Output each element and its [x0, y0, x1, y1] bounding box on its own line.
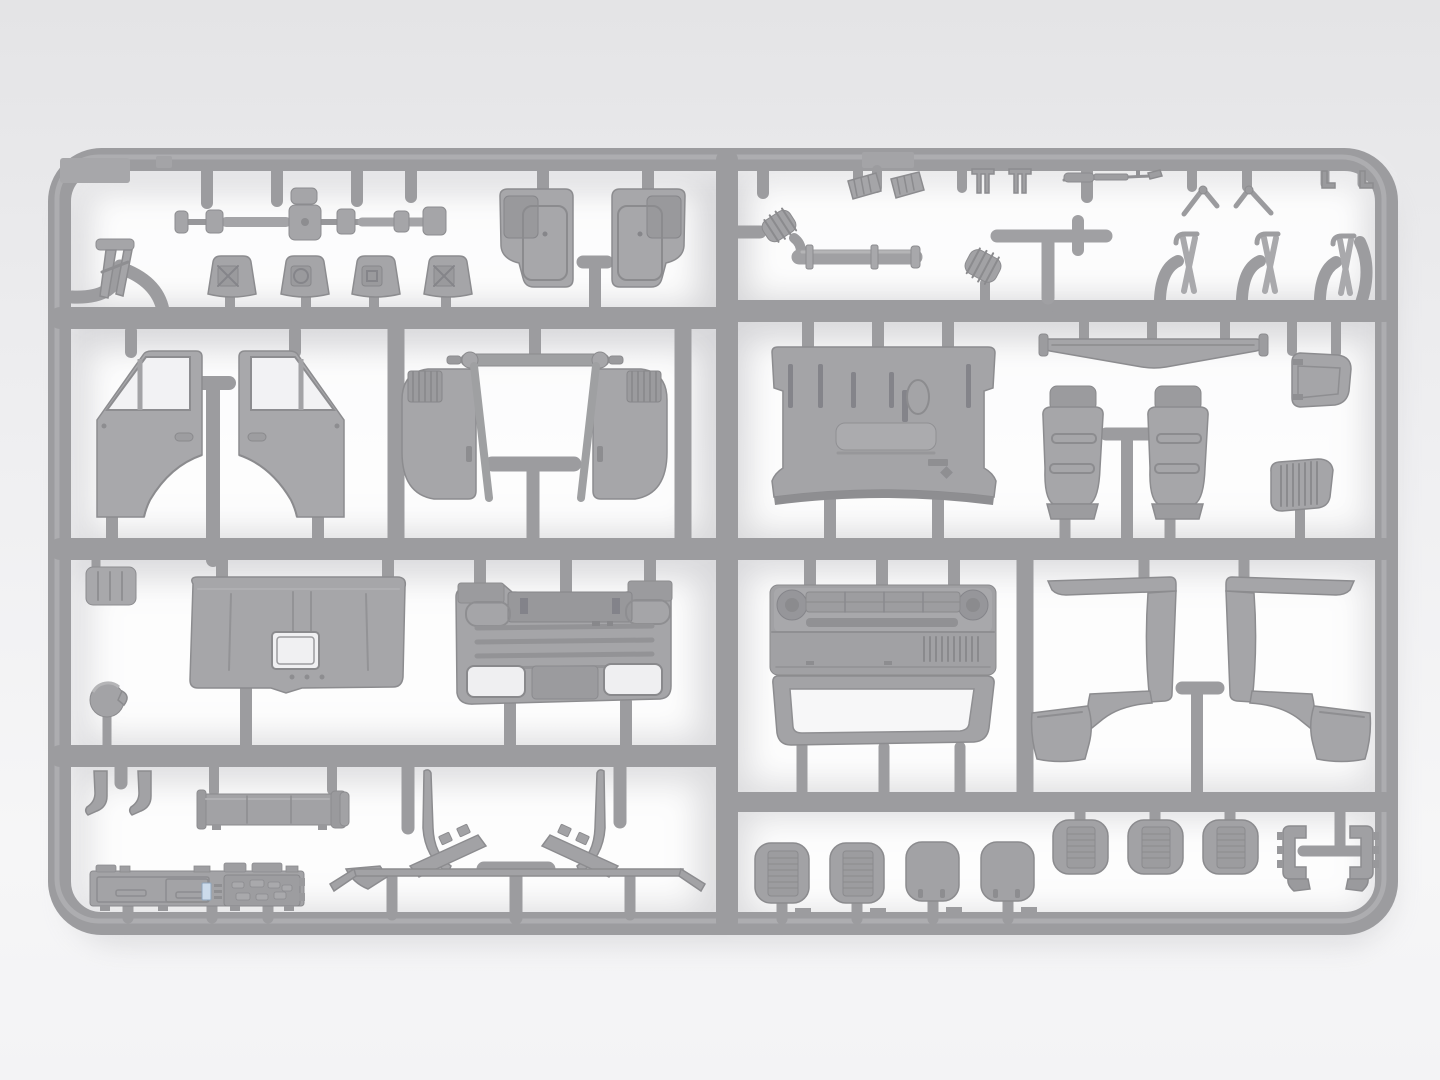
grille-clip [520, 598, 528, 614]
crossbar-pin [609, 356, 623, 364]
seat-cushion [906, 842, 959, 901]
driveshaft-bolt [301, 218, 309, 226]
cab-floor-panel [772, 347, 996, 497]
radio-button [214, 896, 222, 899]
molded-tab [156, 156, 172, 168]
engine-hump-step [836, 423, 936, 450]
dash-round-vent-center [785, 598, 799, 612]
fascia-tab [252, 863, 282, 872]
roof-hole [320, 675, 325, 680]
roof-hole [290, 675, 295, 680]
panel-slot [851, 372, 856, 408]
bracket-foot [1288, 879, 1310, 891]
cluster-bump [236, 893, 250, 900]
panel-slot [818, 364, 823, 408]
cowl-slot [466, 446, 472, 462]
cushion-foot [918, 889, 923, 898]
door-lock-dot [102, 424, 107, 429]
license-plate-recess [532, 666, 598, 699]
cluster-bump [256, 894, 268, 900]
bracket-serration [1277, 846, 1283, 854]
cluster-bump [274, 892, 286, 899]
fascia-tab [96, 865, 116, 872]
wishbone-joint [1199, 186, 1207, 194]
bracket-serration [1277, 860, 1283, 868]
trim-blade [352, 869, 683, 876]
fascia-foot [158, 906, 168, 911]
cushion-rib-panel [1067, 827, 1095, 868]
cushion-rib-panel [1217, 827, 1245, 868]
molded-tab [862, 152, 914, 168]
pipe-endcap [911, 246, 920, 268]
door-lock-dot [335, 424, 340, 429]
cushion-rib-panel [1142, 827, 1170, 868]
rifle-body [1064, 173, 1094, 182]
seatback-flap [1152, 504, 1203, 519]
pipe-flange [806, 245, 813, 269]
grille-slat [477, 640, 652, 642]
gate-step [1021, 907, 1037, 916]
seatback-body [1148, 407, 1208, 504]
door-handle [248, 433, 266, 441]
fascia-side-tab [299, 878, 305, 886]
cowl-slot [597, 446, 603, 462]
duct-foot [212, 824, 221, 830]
side-frame-pillar [1146, 591, 1176, 702]
molded-corner-tab [60, 158, 130, 183]
cushion-foot [1015, 889, 1020, 898]
small-bar [340, 792, 349, 826]
door-card-pocket [647, 196, 681, 238]
door-card-pocket [504, 196, 538, 238]
fascia-tab [194, 866, 210, 872]
roof-hole [305, 675, 310, 680]
panel-slot [889, 372, 894, 408]
fascia-tab [224, 863, 246, 872]
radio-display [202, 883, 211, 900]
side-frame-pillar [1226, 591, 1256, 702]
driveshaft-ujoint [394, 211, 409, 232]
fascia-tab [286, 866, 298, 872]
seatback-flap [1047, 504, 1098, 519]
dash-mark [806, 661, 814, 665]
dash-round-vent-center [966, 598, 980, 612]
model-kit-sprue-photo [0, 0, 1440, 1080]
driveshaft-ujoint [206, 210, 223, 233]
dash-mark [884, 661, 892, 665]
gate-step [946, 907, 962, 916]
bracket-serration [1373, 860, 1379, 868]
bracket-serration [1277, 832, 1283, 840]
gate-step [870, 908, 886, 917]
panel-slot [788, 364, 793, 408]
pipe-flange [871, 245, 878, 269]
bracket-serration [1373, 832, 1379, 840]
fascia-side-tab [299, 893, 305, 901]
cushion-foot [993, 889, 998, 898]
grille-tab [607, 621, 613, 626]
door-handle [175, 433, 193, 441]
driveshaft-yoke [175, 211, 188, 233]
crossbar-pin [447, 356, 461, 364]
cowl-crossbar [461, 354, 609, 366]
rifle-stock [1094, 174, 1128, 180]
panel-detail [928, 459, 948, 466]
panel-slot [966, 364, 971, 408]
grille-corner-block [628, 581, 672, 601]
radio-button [214, 884, 222, 887]
cluster-bump [282, 885, 292, 891]
cluster-bump [250, 880, 264, 887]
fascia-foot [230, 906, 240, 911]
bracket-foot [1346, 879, 1368, 891]
grille-clip [612, 598, 620, 614]
fascia-foot [100, 906, 110, 911]
rifle-sight [1136, 170, 1140, 177]
cluster-bump [232, 882, 244, 888]
seatback-body [1043, 407, 1103, 504]
dash-slot-strip [806, 618, 958, 627]
pedal-bracket-bar [96, 239, 134, 250]
crossmember-cap [1039, 334, 1048, 356]
fascia-foot [284, 906, 294, 911]
grille-slat [477, 626, 652, 628]
wishbone-joint [1245, 186, 1253, 194]
cushion-foot [940, 889, 945, 898]
duct-foot [318, 824, 327, 830]
grille-tab [592, 621, 600, 626]
headlight-opening [604, 664, 662, 695]
seat-base-recess [362, 266, 382, 286]
door-card-dot [638, 232, 643, 237]
mirror-tab [1293, 394, 1303, 400]
seat-cushion [981, 842, 1034, 901]
door-card-dot [543, 232, 548, 237]
radio-button [214, 890, 222, 893]
bracket-serration [1373, 846, 1379, 854]
rifle-butt [1148, 170, 1162, 179]
driveshaft-ujoint [337, 209, 355, 234]
driveshaft-diff-cap [291, 188, 317, 204]
cluster-bump [268, 882, 280, 888]
crossmember-cap [1259, 334, 1268, 356]
driveshaft-carrier [423, 207, 446, 235]
windshield-opening [790, 689, 974, 733]
headlight-opening [467, 666, 525, 697]
mirror-tab [1293, 359, 1303, 365]
gate-step [795, 908, 811, 917]
fascia-tab [120, 866, 130, 872]
sprue-render [0, 0, 1440, 1080]
duct-flange [197, 790, 206, 829]
grille-slat [477, 654, 652, 656]
grille-corner-block [458, 583, 504, 603]
